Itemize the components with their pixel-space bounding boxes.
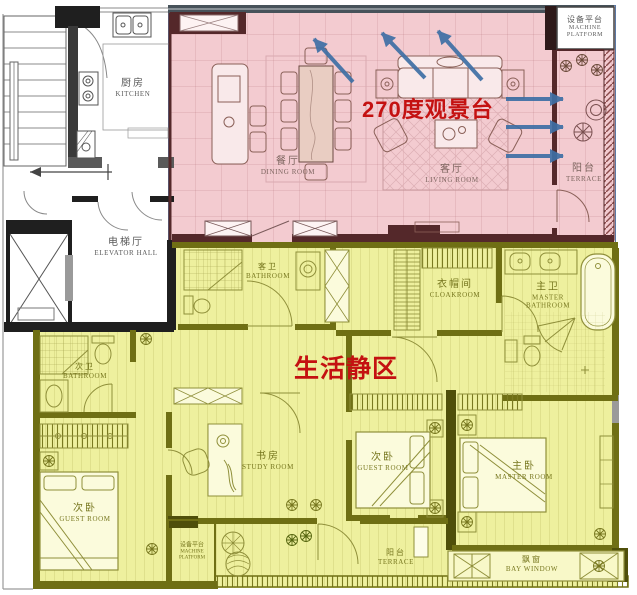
bay-window-structure	[448, 551, 624, 581]
staircase	[4, 16, 112, 214]
study-room-furniture	[174, 388, 322, 511]
terrace-chair	[574, 100, 606, 141]
terrace-right-structure	[557, 50, 614, 242]
kitchen-stove	[79, 72, 98, 105]
hall-bathroom	[184, 250, 349, 326]
guest-room-mid-furniture	[350, 394, 443, 557]
machine-platform-top-structure	[545, 6, 614, 50]
kitchen-room-outline	[103, 44, 169, 130]
terrace-bottom-structure	[168, 520, 358, 582]
kitchen-structure	[55, 6, 174, 220]
hallway-door-arc	[392, 337, 437, 382]
guest-left-door-arc	[168, 450, 192, 474]
bathroom-door-arc	[247, 281, 292, 326]
wall-cabinets	[205, 221, 440, 236]
second-bathroom-door-arc	[84, 384, 112, 412]
water-heater	[77, 131, 95, 158]
study-door-arc	[260, 393, 300, 433]
kitchen-sink	[113, 13, 151, 37]
hall-door-arc	[98, 202, 128, 230]
terrace-bottom-door-arc	[318, 524, 358, 564]
master-room-furniture	[458, 394, 613, 540]
floor-plan: 厨房 KITCHEN 电梯厅 ELEVATOR HALL 餐厅 DINING R…	[0, 0, 637, 595]
terrace-door-arc	[557, 190, 589, 222]
elevator	[4, 196, 176, 332]
plan-linework	[0, 0, 637, 595]
living-furniture	[372, 56, 524, 190]
master-bathroom-fixtures	[505, 250, 615, 392]
